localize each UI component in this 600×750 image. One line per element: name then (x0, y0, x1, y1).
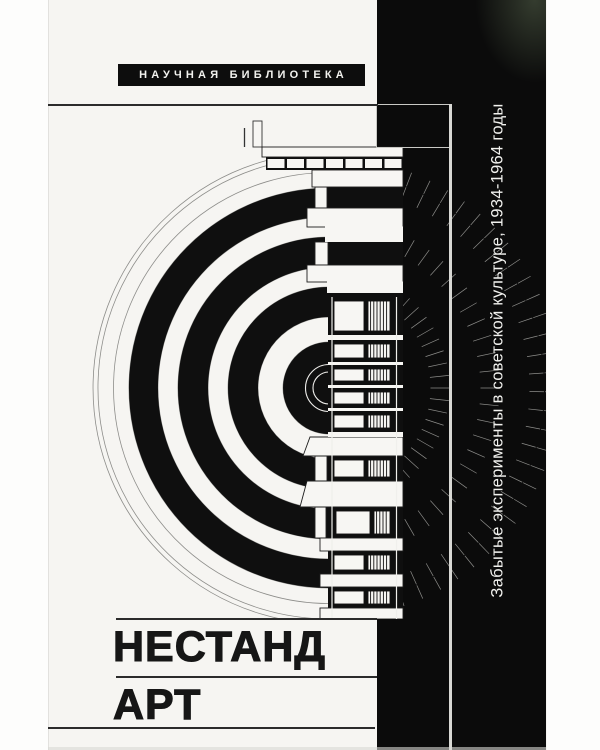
title-rule-middle (116, 676, 377, 678)
series-label: НАУЧНАЯ БИБЛИОТЕКА (135, 69, 348, 81)
band-subtitle-wrap: Забытые эксперименты в советской культур… (451, 0, 546, 700)
title-line-1: НЕСТАНД (113, 626, 326, 669)
title-line-2: АРТ (113, 684, 201, 727)
title-rule-top (116, 618, 377, 620)
series-label-box: НАУЧНАЯ БИБЛИОТЕКА (118, 64, 365, 86)
facade-outline-box (376, 104, 451, 148)
title-rule-bottom (48, 727, 375, 729)
header-rule (48, 104, 378, 106)
book-cover-photo: НАУЧНАЯ БИБЛИОТЕКА НЕСТАНД АРТ Забытые э… (0, 0, 600, 750)
band-subtitle-vertical-text: Забытые эксперименты в советской культур… (489, 103, 508, 597)
